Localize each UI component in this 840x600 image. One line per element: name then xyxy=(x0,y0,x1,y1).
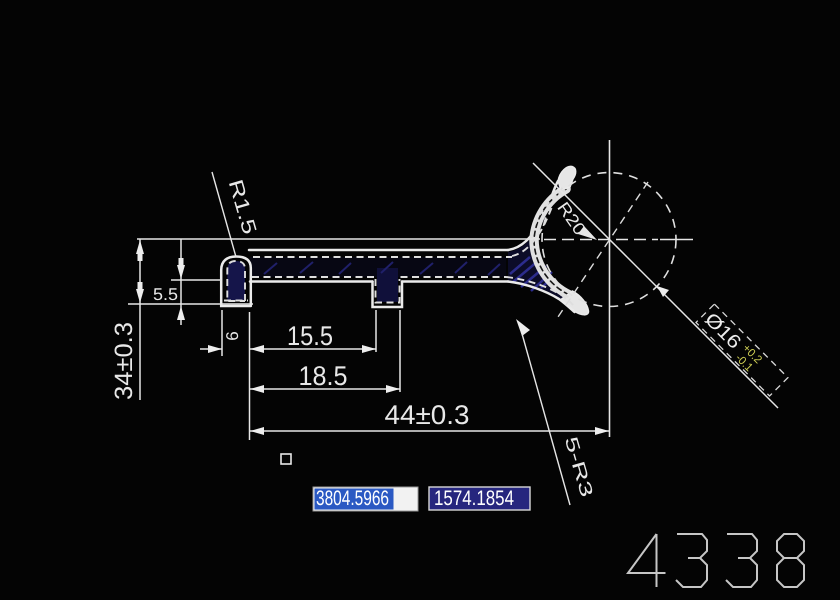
svg-text:1574.1854: 1574.1854 xyxy=(434,487,514,510)
svg-text:6: 6 xyxy=(223,331,242,340)
svg-text:5.5: 5.5 xyxy=(153,285,178,304)
svg-text:18.5: 18.5 xyxy=(299,361,348,391)
svg-text:34±0.3: 34±0.3 xyxy=(110,322,138,400)
svg-text:15.5: 15.5 xyxy=(287,321,333,351)
svg-text:44±0.3: 44±0.3 xyxy=(385,400,470,430)
svg-text:3804.5966: 3804.5966 xyxy=(316,487,389,510)
